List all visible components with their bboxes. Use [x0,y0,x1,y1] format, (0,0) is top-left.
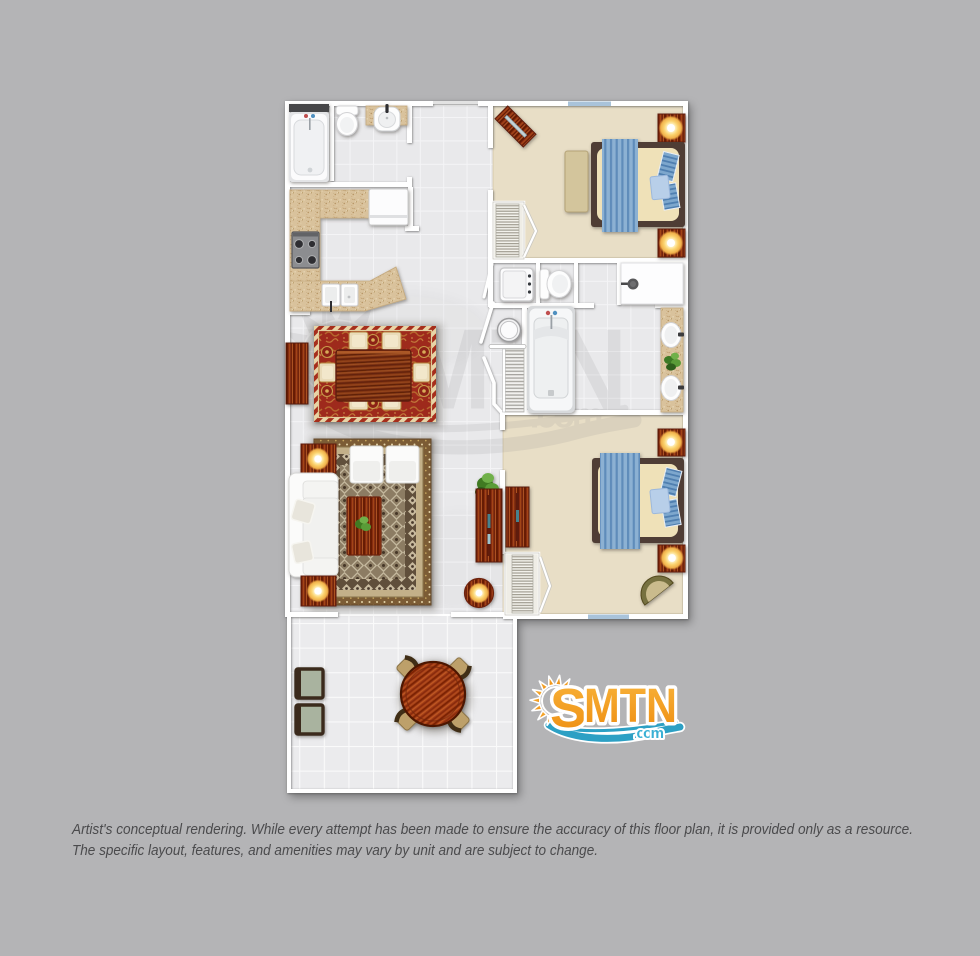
svg-text:.com: .com [634,725,664,742]
svg-text:The specific layout, features,: The specific layout, features, and ameni… [72,842,598,859]
svg-text:Artist's conceptual rendering.: Artist's conceptual rendering. While eve… [71,821,913,838]
svg-text:S: S [550,677,587,739]
